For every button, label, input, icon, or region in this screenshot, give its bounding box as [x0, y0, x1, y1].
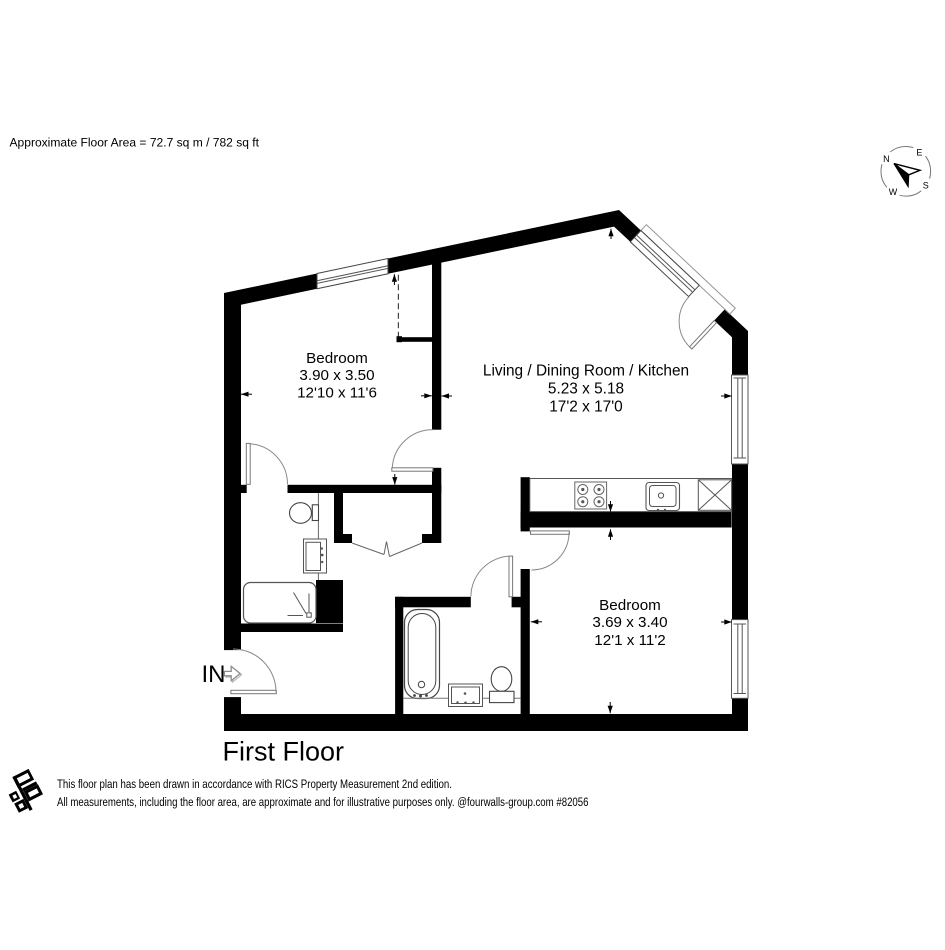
svg-text:3.69 x 3.40: 3.69 x 3.40: [592, 614, 667, 631]
svg-text:Living / Dining Room / Kitchen: Living / Dining Room / Kitchen: [483, 362, 689, 379]
svg-text:All measurements, including th: All measurements, including the floor ar…: [57, 795, 589, 809]
svg-text:17'2 x 17'0: 17'2 x 17'0: [549, 398, 622, 415]
svg-text:12'1 x 11'2: 12'1 x 11'2: [594, 632, 665, 649]
svg-text:W: W: [889, 187, 898, 197]
svg-text:E: E: [916, 147, 922, 157]
svg-text:12'10 x 11'6: 12'10 x 11'6: [297, 384, 377, 401]
svg-text:3.90 x 3.50: 3.90 x 3.50: [299, 367, 374, 384]
svg-text:First Floor: First Floor: [223, 737, 345, 767]
svg-text:5.23 x 5.18: 5.23 x 5.18: [548, 381, 624, 398]
svg-text:Bedroom: Bedroom: [599, 597, 661, 614]
svg-text:IN: IN: [202, 661, 226, 688]
svg-text:Bedroom: Bedroom: [306, 350, 368, 367]
svg-text:This floor plan has been drawn: This floor plan has been drawn in accord…: [57, 777, 452, 791]
svg-text:S: S: [923, 180, 929, 190]
svg-text:Approximate Floor Area = 72.7: Approximate Floor Area = 72.7 sq m / 782…: [10, 135, 260, 149]
svg-text:N: N: [883, 154, 890, 164]
